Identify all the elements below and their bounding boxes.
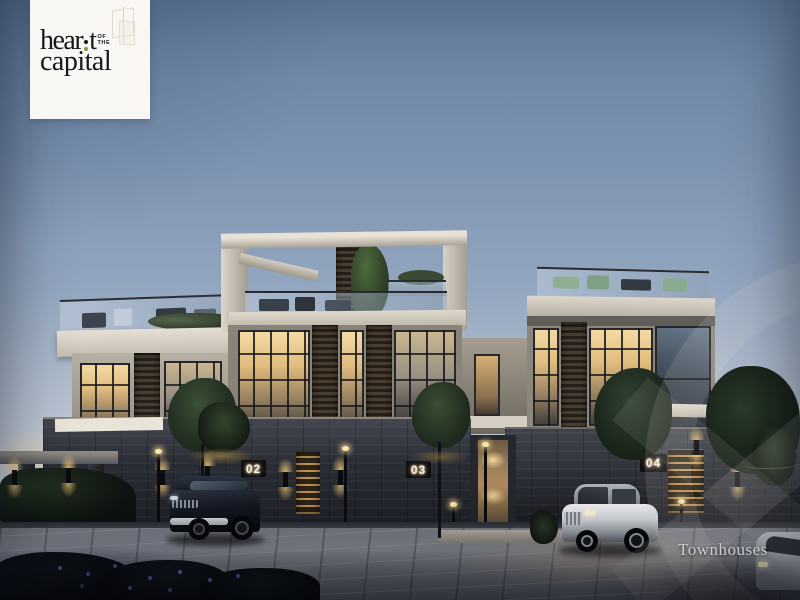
- logo-line-2: capital: [40, 48, 146, 76]
- render-scene: 02 03 04: [0, 0, 800, 600]
- logo-wordmark: hear t of the capital: [40, 27, 146, 76]
- developer-logo-card: hear t of the capital: [30, 0, 150, 119]
- caption-townhouses: Townhouses: [678, 540, 768, 560]
- logo-small-text: of the: [97, 34, 110, 47]
- vignette-corner: [620, 555, 800, 600]
- vignette-corner: [0, 545, 250, 600]
- logo-dot-black: [84, 40, 88, 44]
